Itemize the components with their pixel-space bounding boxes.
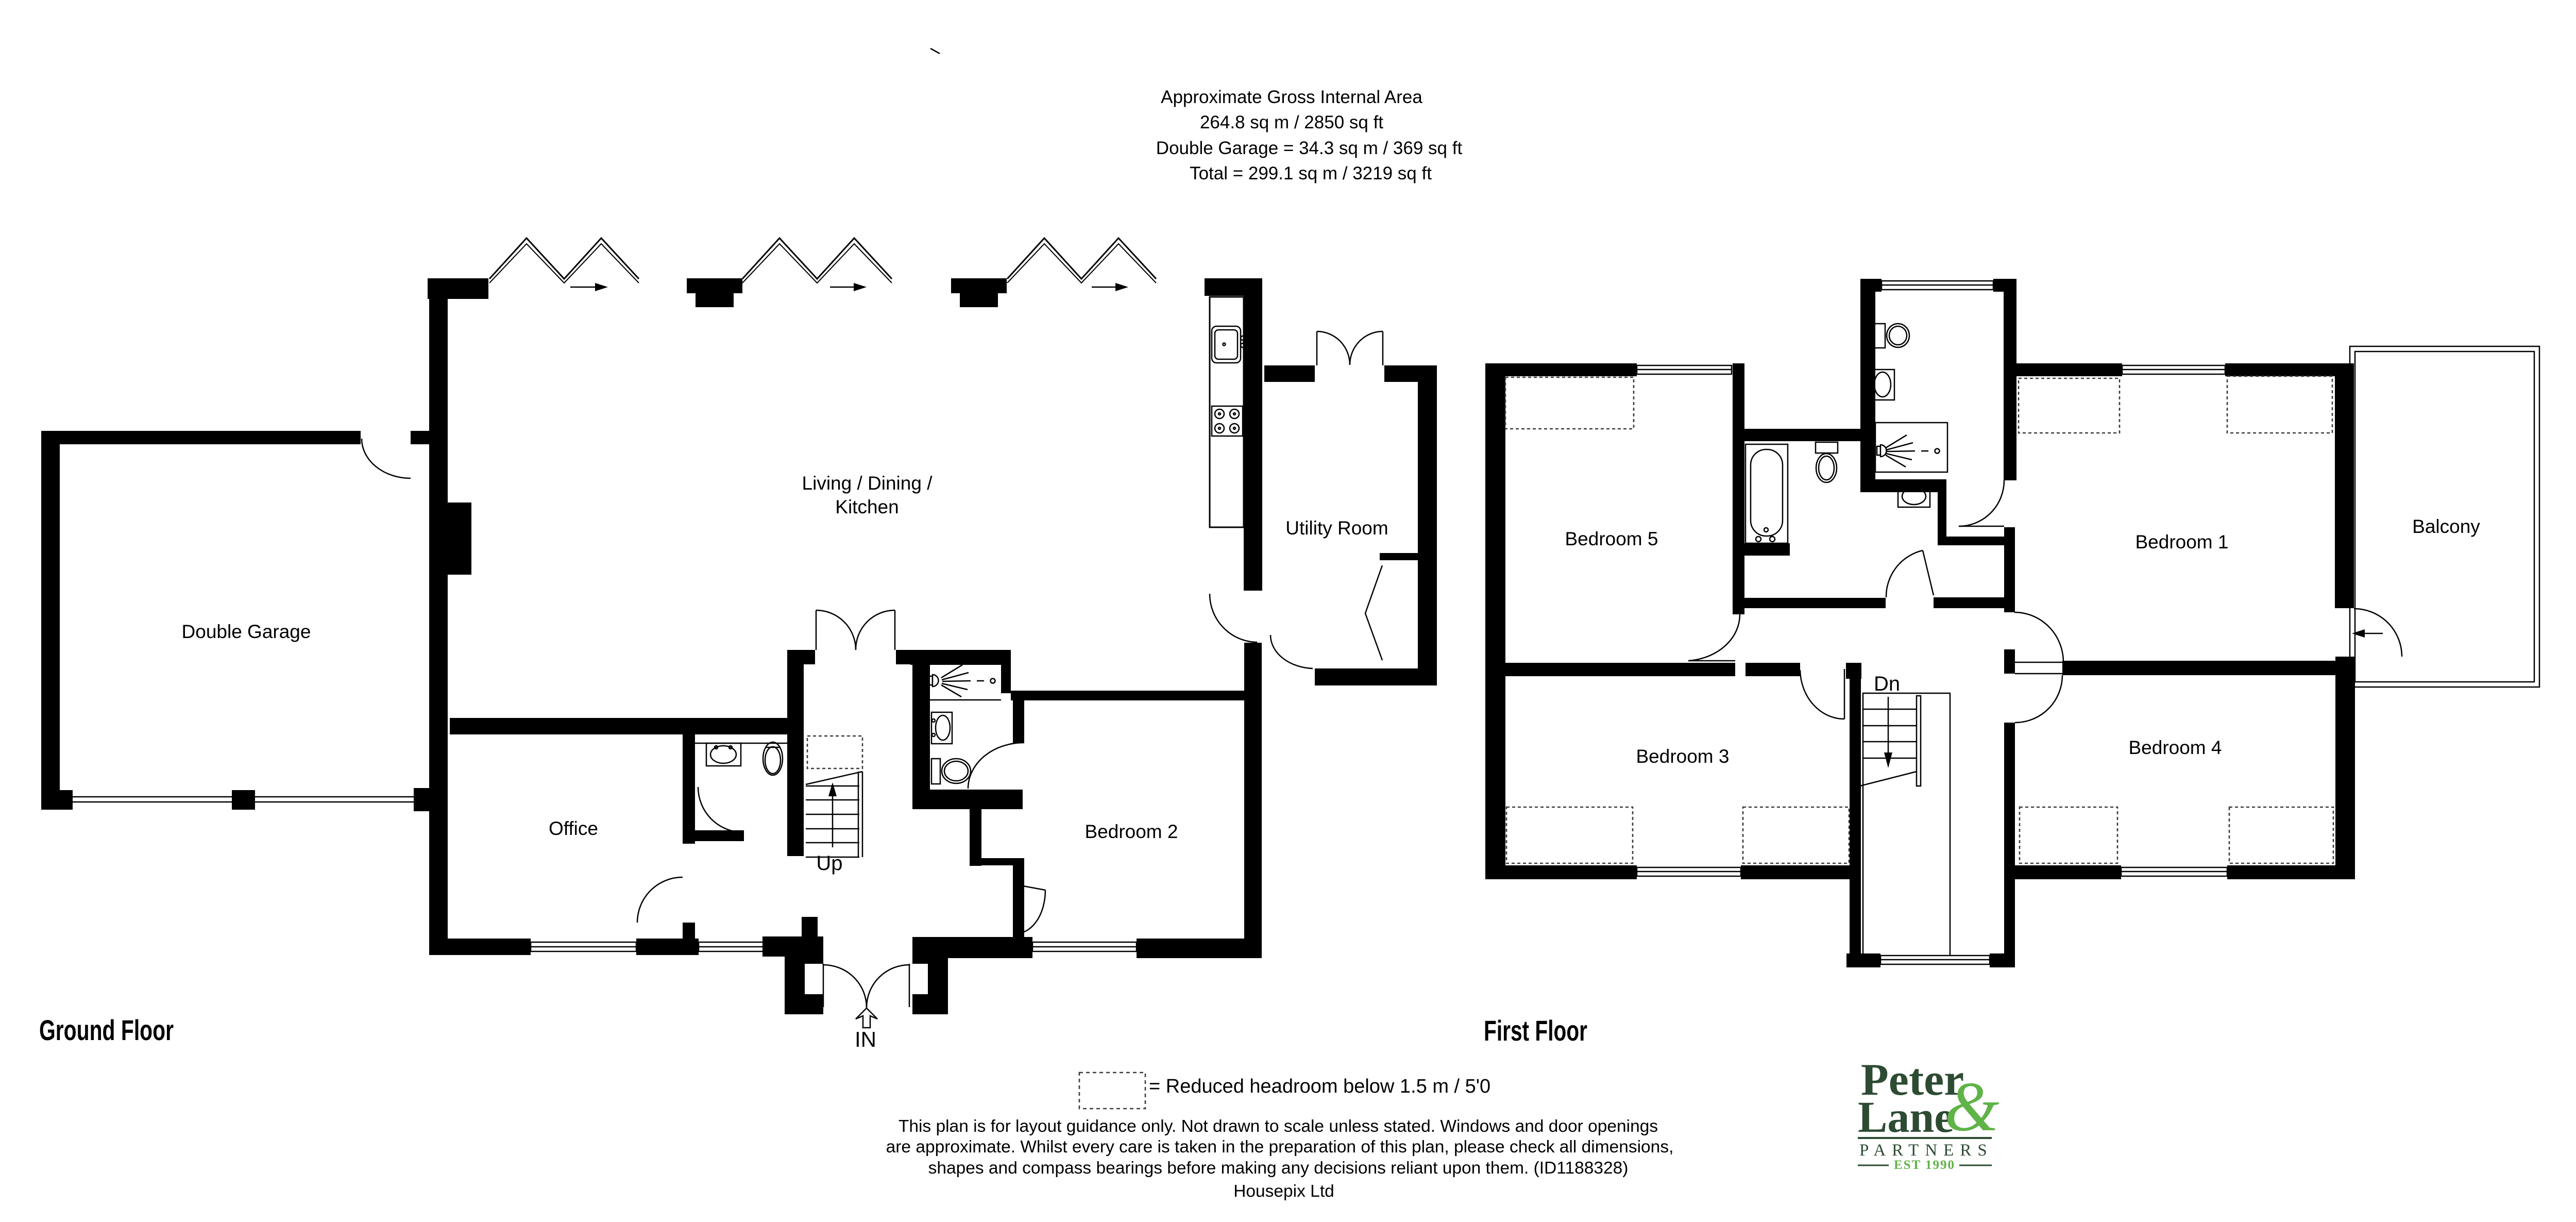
svg-text:Office: Office (549, 818, 598, 839)
svg-text:Ground Floor: Ground Floor (39, 1014, 174, 1046)
svg-text:Double Garage: Double Garage (182, 621, 311, 642)
svg-text:= Reduced headroom below 1.5: = Reduced headroom below 1.5 m / 5'0 (1149, 1076, 1490, 1097)
svg-text:Bedroom 5: Bedroom 5 (1565, 528, 1658, 549)
svg-text:Dn: Dn (1874, 673, 1900, 695)
svg-text:Up: Up (816, 852, 842, 875)
svg-text:Bedroom 1: Bedroom 1 (2136, 531, 2229, 553)
svg-text:First Floor: First Floor (1484, 1014, 1587, 1047)
svg-text:Lane: Lane (1858, 1092, 1954, 1142)
svg-text:Balcony: Balcony (2412, 516, 2480, 537)
svg-text:&: & (1944, 1067, 1999, 1146)
svg-text:shapes and compass bearings be: shapes and compass bearings before makin… (928, 1159, 1629, 1178)
svg-text:Bedroom 2: Bedroom 2 (1085, 821, 1178, 842)
svg-text:264.8 sq m / 2850 sq ft: 264.8 sq m / 2850 sq ft (1200, 112, 1383, 132)
svg-text:Living / Dining /: Living / Dining / (802, 473, 933, 494)
svg-text:Housepix Ltd: Housepix Ltd (1233, 1182, 1334, 1201)
svg-text:Bedroom 4: Bedroom 4 (2129, 737, 2222, 758)
svg-text:PARTNERS: PARTNERS (1859, 1141, 1993, 1160)
svg-text:Utility Room: Utility Room (1285, 517, 1388, 539)
svg-text:IN: IN (855, 1027, 876, 1051)
svg-text:Kitchen: Kitchen (835, 496, 899, 517)
svg-text:Double Garage = 34.3 sq m / 36: Double Garage = 34.3 sq m / 369 sq ft (1156, 138, 1463, 158)
svg-text:This plan is for layout guidan: This plan is for layout guidance only. N… (899, 1117, 1658, 1136)
svg-text:are approximate. Whilst every: are approximate. Whilst every care is ta… (886, 1137, 1674, 1157)
svg-text:Approximate Gross Internal Are: Approximate Gross Internal Area (1161, 87, 1422, 107)
svg-text:EST 1990: EST 1990 (1894, 1158, 1955, 1172)
svg-text:Bedroom 3: Bedroom 3 (1636, 746, 1730, 767)
svg-text:Total = 299.1 sq m / 3219 sq f: Total = 299.1 sq m / 3219 sq ft (1190, 163, 1432, 183)
